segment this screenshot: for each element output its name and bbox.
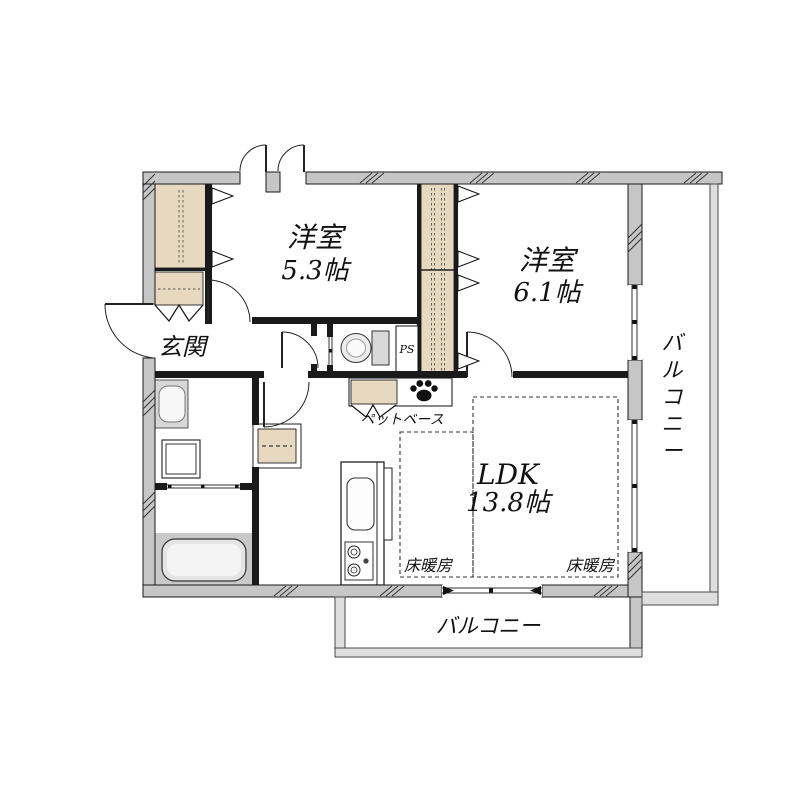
pet-base-label: ペットベース: [360, 412, 443, 428]
washing-machine-pan: [162, 440, 200, 478]
entrance-label: 玄関: [158, 333, 209, 361]
ldk-size: 13.8帖: [466, 488, 554, 518]
floorplan-page: 洋室 5.3帖 洋室 6.1帖 LDK 13.8帖 玄関 バルコニー バルコニー…: [0, 0, 800, 800]
bathroom: [155, 533, 252, 585]
pipe-space-label: PS: [399, 343, 415, 356]
closet-divider: [155, 268, 212, 271]
bedroom2-name: 洋室: [519, 244, 579, 277]
top-outside-doors: [240, 145, 304, 172]
corridor-storage: [253, 424, 301, 468]
balcony-right-label: バルコニー: [662, 331, 686, 463]
counter-return: [384, 468, 392, 540]
toilet-fixture: [341, 331, 389, 365]
kitchen-sink: [347, 478, 374, 530]
closet-bedroom2: [417, 184, 458, 377]
bedroom2-size: 6.1帖: [513, 278, 584, 308]
ldk-name: LDK: [476, 458, 541, 491]
entrance-door: [105, 304, 153, 358]
kitchen-counter: [341, 462, 392, 585]
washbasin: [150, 380, 188, 428]
top-door-post: [266, 172, 280, 192]
floor-heating-left-label: 床暖房: [404, 556, 454, 575]
bedroom1-size: 5.3帖: [281, 256, 352, 286]
window-right-upper: [628, 285, 642, 360]
balcony-bottom-label: バルコニー: [436, 614, 542, 638]
closet-bedroom1: [155, 184, 212, 271]
window-bottom-sliding: [442, 585, 542, 597]
floor-heating-right-label: 床暖房: [566, 556, 616, 575]
bedroom1-name: 洋室: [287, 221, 347, 254]
window-right-lower: [628, 420, 642, 552]
floorplan-canvas: 洋室 5.3帖 洋室 6.1帖 LDK 13.8帖 玄関 バルコニー バルコニー…: [0, 0, 800, 800]
